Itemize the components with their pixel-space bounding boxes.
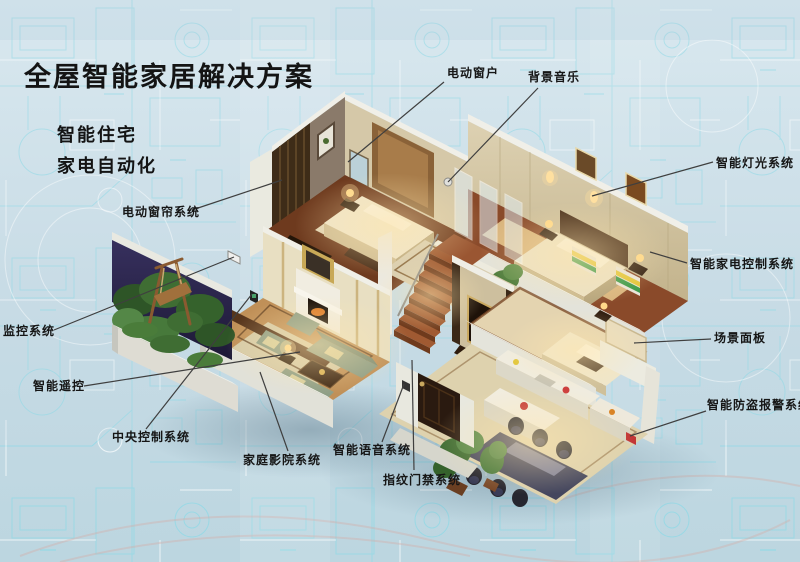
callout-label-smart-remote: 智能遥控 (33, 377, 85, 394)
callout-label-anti-theft-alarm: 智能防盗报警系统 (707, 396, 800, 413)
callout-label-home-theater: 家庭影院系统 (243, 451, 321, 468)
callout-label-electric-window: 电动窗户 (447, 64, 499, 81)
callout-label-background-music: 背景音乐 (528, 68, 580, 85)
callout-label-smart-voice: 智能语音系统 (333, 441, 411, 458)
callout-label-fingerprint-access: 指纹门禁系统 (383, 471, 461, 488)
callout-label-smart-lighting: 智能灯光系统 (716, 154, 794, 171)
callout-label-central-control: 中央控制系统 (112, 428, 190, 445)
poster-page: 全屋智能家居解决方案 智能住宅 家电自动化 电动窗户 背景音乐 智能灯光系统 智… (0, 0, 800, 562)
callout-label-smart-appliance-control: 智能家电控制系统 (690, 255, 794, 272)
callout-label-scene-panel: 场景面板 (714, 329, 766, 346)
subtitle-appliance-automation: 家电自动化 (57, 152, 157, 178)
callout-label-monitoring-system: 监控系统 (3, 322, 55, 339)
page-title: 全屋智能家居解决方案 (24, 55, 314, 94)
subtitle-smart-residence: 智能住宅 (57, 121, 137, 147)
callout-label-electric-curtain: 电动窗帘系统 (122, 203, 200, 220)
